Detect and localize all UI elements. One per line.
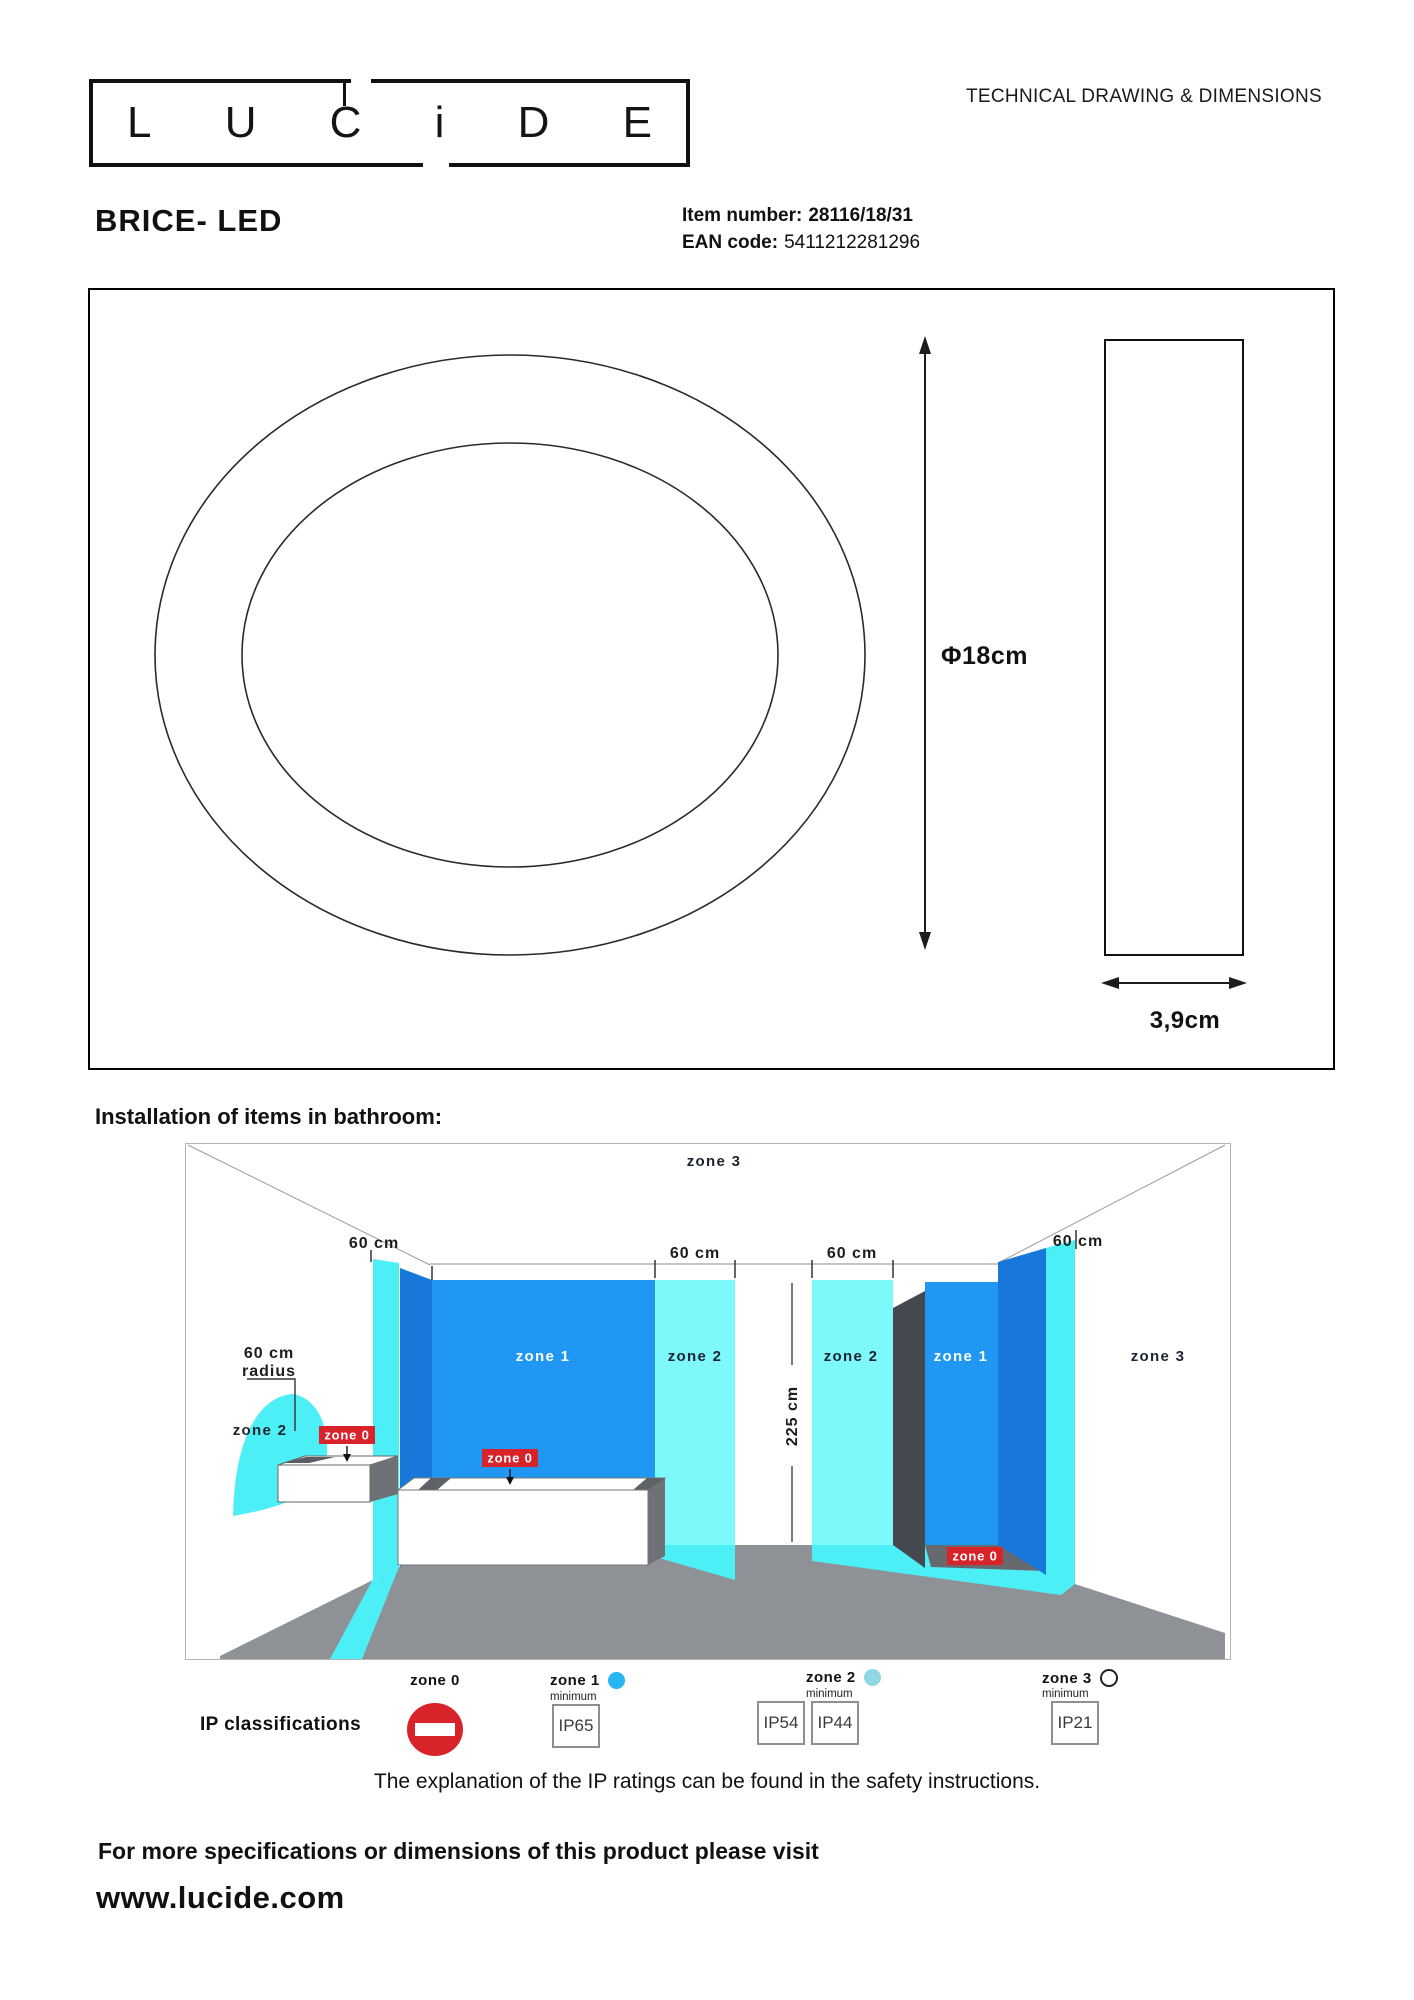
legend-zone2-row: zone 2 — [806, 1669, 881, 1686]
legend-zone3-minimum: minimum — [1042, 1688, 1089, 1700]
legend-zone3-row: zone 3 — [1042, 1669, 1118, 1687]
bathroom-section-title: Installation of items in bathroom: — [95, 1104, 442, 1130]
technical-drawing: Φ18cm 3,9cm — [90, 290, 1333, 1068]
ip54-rating-box: IP54 — [757, 1701, 805, 1745]
zone3-ceiling-label: zone 3 — [687, 1153, 741, 1170]
legend-zone3-label: zone 3 — [1042, 1670, 1092, 1687]
zone3-right-label: zone 3 — [1131, 1348, 1185, 1365]
zone0-badge-shower: zone 0 — [947, 1547, 1003, 1565]
zone2-strip-left-wall — [373, 1259, 399, 1579]
depth-dimension-arrow — [1101, 977, 1247, 989]
document-type-title: TECHNICAL DRAWING & DIMENSIONS — [966, 86, 1322, 108]
diameter-label: Φ18cm — [941, 642, 1028, 670]
logo-border-gap — [423, 163, 449, 167]
dim-60cm-right-wall: 60 cm — [1053, 1233, 1103, 1250]
height-dimension-label: 225 cm — [784, 1386, 801, 1446]
zone1-color-dot-icon — [608, 1672, 625, 1689]
product-top-view-inner-ring — [242, 443, 778, 867]
logo-letter: E — [623, 101, 652, 145]
washbasin — [278, 1456, 398, 1502]
zone1-side-wall-shower — [998, 1248, 1046, 1575]
dim-60cm-mid-right: 60 cm — [827, 1245, 877, 1262]
svg-text:zone 0: zone 0 — [487, 1451, 532, 1466]
legend-zone1-row: zone 1 — [550, 1672, 625, 1689]
logo-letter: U — [225, 101, 257, 145]
legend-zone2-minimum: minimum — [806, 1688, 853, 1700]
zone2-wall-bath — [655, 1280, 735, 1545]
zone2-shower-label: zone 2 — [824, 1348, 878, 1365]
radius-label-line1: 60 cm — [244, 1345, 294, 1362]
dim-60cm-left-wall: 60 cm — [349, 1235, 399, 1252]
ip-classifications-title: IP classifications — [200, 1714, 361, 1736]
item-number-row: Item number:28116/18/31 — [682, 202, 920, 229]
logo-letter: i — [435, 101, 445, 145]
diameter-dimension-arrow — [919, 336, 931, 950]
footer-specifications-line: For more specifications or dimensions of… — [98, 1838, 819, 1865]
radius-label-line2: radius — [242, 1363, 296, 1380]
product-top-view-outer-ring — [155, 355, 865, 955]
item-number-value: 28116/18/31 — [808, 205, 913, 226]
ceiling-edge-right — [1000, 1145, 1225, 1262]
legend-zone1-minimum: minimum — [550, 1691, 597, 1703]
logo-letter: L — [127, 101, 151, 145]
product-identifiers: Item number:28116/18/31 EAN code:5411212… — [682, 202, 920, 256]
lucide-logo: L U C i D E — [89, 79, 690, 167]
shower-screen — [893, 1291, 925, 1568]
no-entry-icon — [407, 1703, 463, 1756]
website-link[interactable]: www.lucide.com — [96, 1880, 345, 1916]
zone2-strip-right-wall — [1046, 1240, 1075, 1584]
dim-60cm-mid-left: 60 cm — [670, 1245, 720, 1262]
room-height-dimension: 225 cm — [784, 1283, 801, 1542]
item-number-label: Item number: — [682, 205, 802, 226]
legend-zone1-label: zone 1 — [550, 1672, 600, 1689]
ean-value: 5411212281296 — [784, 232, 920, 253]
ip65-rating-box: IP65 — [552, 1704, 600, 1748]
product-side-view — [1105, 340, 1243, 955]
zone2-sink-label: zone 2 — [233, 1422, 287, 1439]
dimension-ticks — [371, 1230, 1076, 1280]
ean-label: EAN code: — [682, 232, 778, 253]
bathtub — [398, 1478, 665, 1565]
ean-row: EAN code:5411212281296 — [682, 229, 920, 256]
product-name: BRICE- LED — [95, 203, 282, 239]
logo-border-gap — [351, 79, 371, 83]
svg-text:zone 0: zone 0 — [952, 1549, 997, 1564]
zone1-shower-label: zone 1 — [934, 1348, 988, 1365]
zone2-color-dot-icon — [864, 1669, 881, 1686]
logo-letter: C — [330, 101, 362, 145]
no-entry-bar — [415, 1723, 454, 1736]
zone2-bath-label: zone 2 — [668, 1348, 722, 1365]
logo-letter: D — [518, 101, 550, 145]
zone1-bath-label: zone 1 — [516, 1348, 570, 1365]
ip-ratings-note: The explanation of the IP ratings can be… — [0, 1770, 1414, 1794]
zone2-wall-shower — [812, 1280, 893, 1545]
legend-zone2-label: zone 2 — [806, 1669, 856, 1686]
ip44-rating-box: IP44 — [811, 1701, 859, 1745]
ip21-rating-box: IP21 — [1051, 1701, 1099, 1745]
technical-drawing-page: L U C i D E TECHNICAL DRAWING & DIMENSIO… — [0, 0, 1414, 2000]
technical-drawing-frame: Φ18cm 3,9cm — [88, 288, 1335, 1070]
zone1-wall-shower — [925, 1282, 998, 1545]
logo-stem-decoration — [343, 79, 346, 106]
legend-zone0-label: zone 0 — [405, 1672, 465, 1689]
depth-label: 3,9cm — [1150, 1007, 1221, 1034]
bathroom-zones-diagram: 225 cm 60 cm radius zone 3 60 cm 60 cm 6… — [185, 1128, 1232, 1662]
svg-text:zone 0: zone 0 — [324, 1428, 369, 1443]
zone3-empty-circle-icon — [1100, 1669, 1118, 1687]
